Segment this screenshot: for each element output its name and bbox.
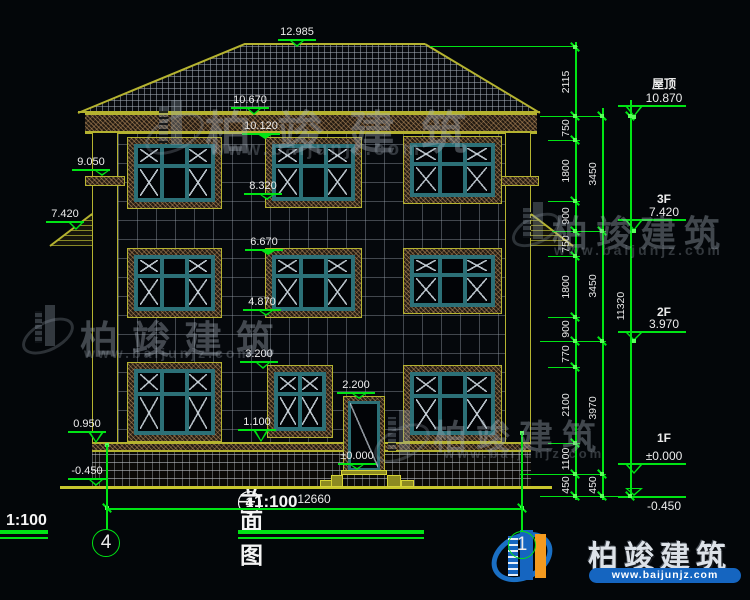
brand-logo-icon — [490, 526, 580, 590]
elevation-marker-triangle-core — [354, 394, 364, 397]
window-casement-x — [302, 377, 318, 390]
watermark-building-bar — [399, 410, 410, 454]
window-casement-x — [280, 377, 296, 390]
drawing-canvas: 4 — 1 轴立面图 1:100 1:100 柏竣建筑 www.baijunjz… — [0, 0, 750, 600]
window-casement-x — [140, 374, 158, 390]
window-transom-bar — [414, 273, 491, 277]
dim-node — [573, 494, 577, 498]
dim-chain-value: 11320 — [615, 292, 627, 320]
elevation-marker-triangle-core — [91, 433, 101, 441]
elevation-marker-triangle-core — [262, 195, 272, 198]
dim-node — [628, 494, 632, 498]
floor-label: 屋顶 — [626, 75, 702, 92]
window-mullion-bar — [160, 373, 164, 431]
dim-node — [573, 339, 577, 343]
watermark-building-bar — [171, 100, 183, 145]
title-underline-thick — [238, 530, 424, 534]
window-transom-bar — [138, 392, 211, 396]
window-mullion-bar — [160, 259, 164, 307]
dim-node — [573, 315, 577, 319]
window-casement-x — [328, 169, 347, 195]
watermark-building-bar — [388, 417, 396, 452]
floor-label: 1F — [626, 431, 702, 445]
elevation-marker-triangle-core — [292, 41, 302, 45]
dim-chain-line-outer — [630, 100, 632, 498]
dim-extension-line — [540, 496, 632, 497]
window-casement-x — [328, 260, 347, 272]
overall-dim-value: 12660 — [297, 492, 330, 506]
watermark-building-bar — [45, 305, 55, 346]
window-transom-bar — [414, 394, 491, 398]
window-transom-bar — [276, 274, 351, 278]
window-casement-x — [467, 167, 487, 191]
elevation-marker-value: ±0.000 — [340, 450, 374, 462]
watermark-building-bar — [35, 311, 43, 343]
elevation-marker-value: 1.100 — [243, 416, 271, 428]
window-casement-x — [302, 397, 318, 425]
window-casement-x — [416, 377, 436, 392]
axis-extension-left — [106, 445, 108, 529]
dim-node — [573, 138, 577, 142]
floor-label: 3F — [626, 192, 702, 206]
elevation-marker-triangle — [260, 250, 276, 255]
elevation-marker-triangle-core — [97, 171, 107, 174]
dim-chain-value: 450 — [587, 476, 599, 494]
corner-underline-thick — [0, 530, 48, 534]
dim-node — [573, 472, 577, 476]
dim-node — [632, 115, 636, 119]
pilaster-left-capital — [85, 176, 125, 186]
elevation-marker-value: 0.950 — [73, 418, 101, 430]
elevation-marker-triangle-core — [71, 223, 81, 228]
brand-url: www.baijunjz.com — [589, 568, 741, 583]
window-casement-x — [416, 167, 436, 191]
watermark-url: www.baijunjz.com — [210, 139, 422, 161]
window-casement-x — [189, 397, 207, 429]
elevation-marker-value: -0.450 — [71, 465, 102, 477]
elevation-marker-triangle-core — [91, 480, 101, 484]
elevation-marker-value: 8.320 — [249, 180, 277, 192]
dim-node — [573, 114, 577, 118]
dim-node — [573, 45, 577, 49]
door-step — [401, 480, 414, 487]
dim-node — [573, 365, 577, 369]
door-step — [320, 480, 332, 487]
floor-label-elevation: -0.450 — [626, 499, 702, 513]
window-casement-x — [280, 397, 296, 425]
window-casement-x — [140, 397, 158, 429]
watermark-building-bar — [523, 208, 530, 238]
floor-label-elevation: ±0.000 — [626, 449, 702, 463]
dim-chain-value: 450 — [560, 476, 572, 494]
dim-chain-value: 3450 — [587, 274, 599, 297]
window-transom-bar — [138, 164, 211, 168]
window-casement-x — [278, 169, 297, 195]
window-casement-x — [416, 278, 436, 301]
floor-label-elevation: 3.970 — [626, 317, 702, 331]
dim-extension-line — [540, 116, 604, 117]
window-casement-x — [416, 260, 436, 271]
elevation-marker-value: 4.870 — [248, 296, 276, 308]
window-casement-x — [140, 260, 158, 272]
window-transom-bar — [276, 164, 351, 168]
elevation-marker-value: 7.420 — [51, 208, 79, 220]
dim-chain-value: 900 — [560, 320, 572, 338]
elevation-marker-value: 9.050 — [77, 156, 105, 168]
window-casement-x — [328, 279, 347, 305]
dim-node — [600, 114, 604, 118]
window-casement-x — [189, 260, 207, 272]
window-casement-x — [467, 278, 487, 301]
window-mullion-bar — [438, 259, 442, 303]
axis-bubble-1: 1 — [508, 531, 536, 559]
pilaster-right-capital — [499, 176, 539, 186]
dim-node — [573, 199, 577, 203]
overall-dim-line — [107, 508, 522, 510]
window-mullion-bar — [299, 259, 303, 307]
watermark-url: www.baijunjz.com — [444, 446, 604, 461]
dim-chain-value: 1800 — [560, 159, 572, 182]
dim-node — [600, 494, 604, 498]
dim-node — [600, 339, 604, 343]
title-underline-thin — [238, 537, 424, 539]
watermark-building-bar — [159, 107, 168, 143]
watermark-building-bar — [533, 202, 543, 239]
door-step — [387, 475, 401, 487]
axis-bubble-4: 4 — [92, 529, 120, 557]
ground-line — [60, 486, 552, 489]
elevation-marker-triangle-core — [352, 465, 362, 468]
window-transom-bar — [138, 274, 211, 278]
watermark-url: www.baijunjz.com — [554, 242, 723, 258]
dim-chain-value: 1800 — [560, 275, 572, 298]
roof-ridge-line — [245, 43, 425, 45]
brand-building-bar-orange — [535, 534, 546, 578]
window-casement-x — [140, 279, 158, 305]
window-mullion-bar — [160, 148, 164, 198]
dim-extension-line — [520, 474, 606, 475]
window-casement-x — [189, 279, 207, 305]
floor-label-elevation: 10.870 — [626, 91, 702, 105]
window-casement-x — [189, 374, 207, 390]
window-casement-x — [467, 260, 487, 271]
dim-node — [632, 339, 636, 343]
corner-scale-text: 1:100 — [6, 512, 47, 530]
dim-chain-value: 3450 — [587, 162, 599, 185]
window-casement-x — [467, 377, 487, 392]
door-threshold — [341, 470, 387, 475]
window-casement-x — [189, 169, 207, 196]
dim-chain-value: 770 — [560, 345, 572, 363]
door-step — [331, 475, 343, 487]
elevation-marker-triangle-core — [256, 431, 266, 440]
dim-chain-value: 2115 — [560, 70, 572, 93]
window-casement-x — [140, 169, 158, 196]
elevation-marker-value: 12.985 — [280, 26, 314, 38]
elevation-marker-value: 6.670 — [250, 236, 278, 248]
dim-node — [600, 472, 604, 476]
window-casement-x — [278, 260, 297, 272]
corner-underline-thin — [0, 537, 48, 539]
watermark-url: www.baijunjz.com — [84, 345, 253, 361]
window-casement-x — [278, 279, 297, 305]
dim-chain-value: 750 — [560, 119, 572, 137]
elevation-marker-value: 2.200 — [342, 379, 370, 391]
dim-extension-line — [430, 46, 578, 47]
